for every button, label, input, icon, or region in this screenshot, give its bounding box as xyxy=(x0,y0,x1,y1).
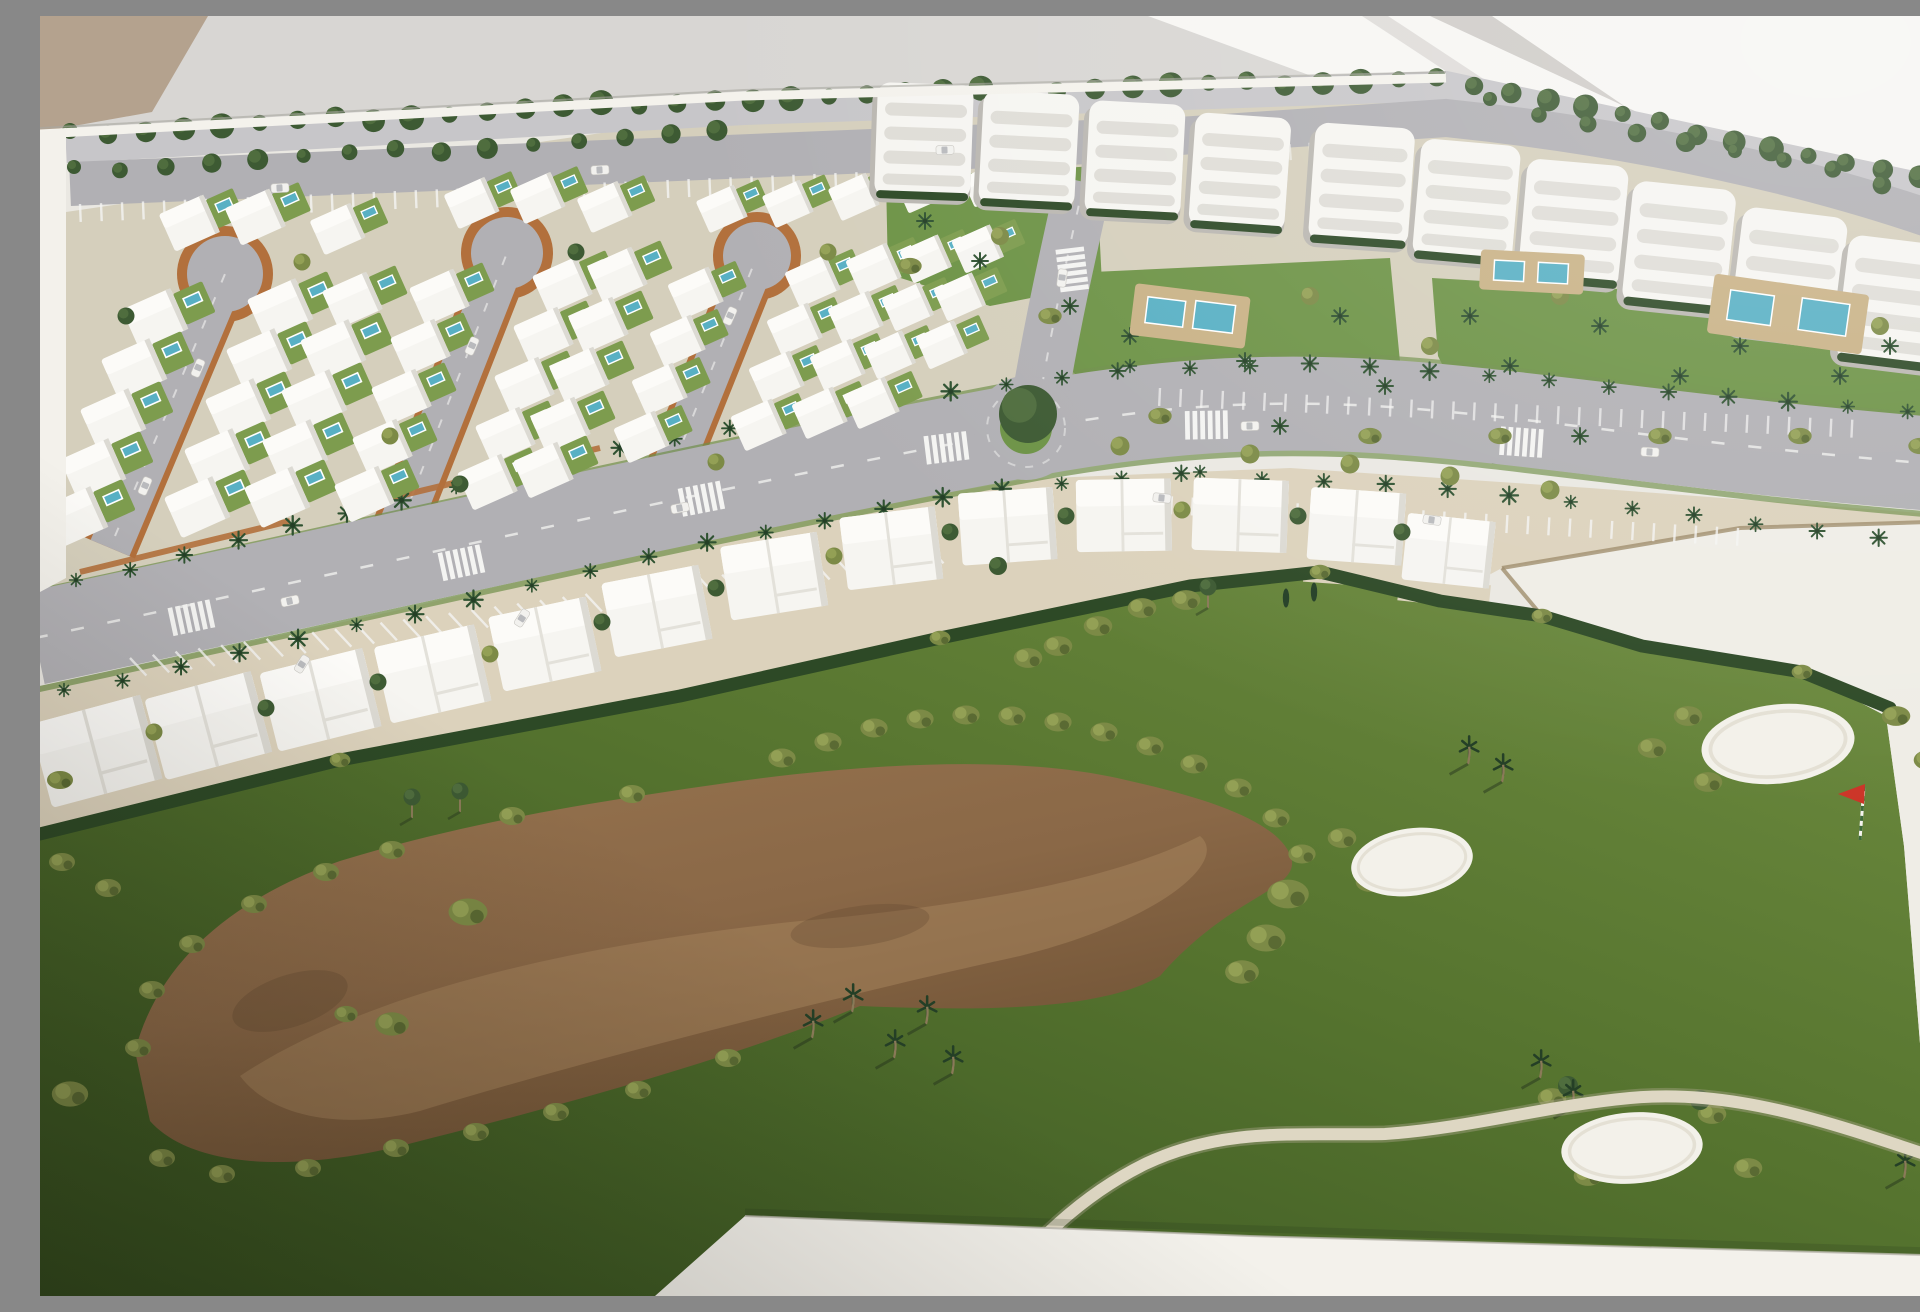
model-photo: Aerial photograph of an architectural sc… xyxy=(40,16,1920,1296)
light-vignette xyxy=(40,16,1920,1296)
scene-svg xyxy=(40,16,1920,1296)
